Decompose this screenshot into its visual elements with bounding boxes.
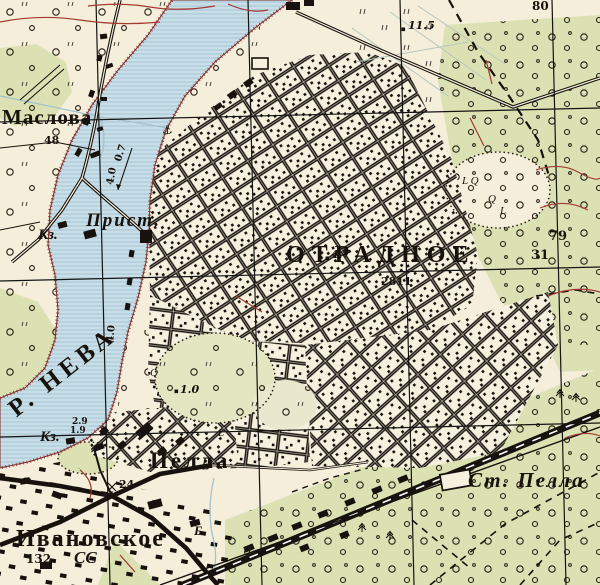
map-graphics xyxy=(0,0,600,585)
topographic-map: Маслова48Прист.Кз.Кз.Р. НЕВА2.91.90.74.0… xyxy=(0,0,600,585)
